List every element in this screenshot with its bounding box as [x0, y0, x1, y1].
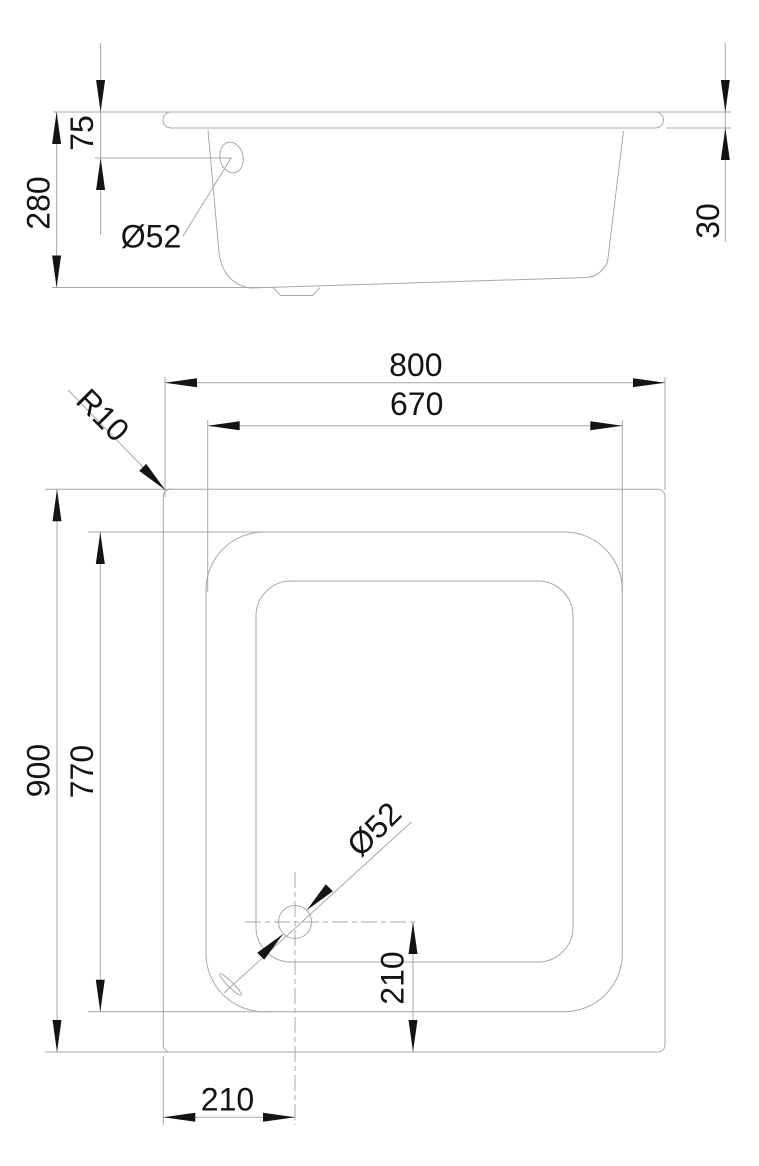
dim-label-280: 280	[21, 176, 57, 229]
arrowhead	[409, 1020, 418, 1052]
side-elevation-view: 75 280 Ø52 30	[21, 43, 731, 296]
drain-leader-line	[183, 158, 232, 237]
technical-drawing-sheet: 75 280 Ø52 30	[0, 0, 759, 1166]
arrowhead	[208, 421, 240, 430]
arrowhead	[53, 489, 62, 521]
dim-label-670: 670	[390, 386, 443, 422]
arrowhead	[52, 112, 61, 144]
dim-label-900: 900	[21, 744, 57, 797]
arrowhead	[633, 378, 665, 387]
rim-profile	[163, 112, 664, 128]
dim-label-770: 770	[64, 745, 100, 798]
dim-label-75: 75	[64, 115, 100, 151]
dim-label-r10: R10	[69, 382, 136, 449]
arrowhead	[257, 934, 283, 960]
arrowhead	[163, 1113, 195, 1122]
dim-label-drain-side: Ø52	[121, 219, 181, 255]
arrowhead	[165, 378, 197, 387]
arrowhead	[52, 256, 61, 288]
arrowhead	[53, 1020, 62, 1052]
left-wall-profile	[208, 130, 250, 288]
arrowhead	[590, 421, 622, 430]
basin-floor-outline	[256, 581, 573, 962]
dim-label-800: 800	[389, 347, 442, 383]
outer-rim-outline	[163, 489, 665, 1052]
arrowhead	[139, 464, 165, 490]
bottom-and-right-wall-profile	[250, 131, 624, 288]
arrowhead	[96, 158, 105, 190]
arrowhead	[96, 980, 105, 1012]
arrowhead	[96, 80, 105, 112]
arrowhead	[409, 922, 418, 954]
dim-label-210-horizontal: 210	[201, 1082, 254, 1118]
dim-label-210-vertical: 210	[375, 951, 411, 1004]
arrowhead	[263, 1113, 295, 1122]
arrowhead	[721, 80, 730, 112]
plan-view: 800 670 R10 900 770 Ø52 210 210	[21, 347, 665, 1125]
dim-label-30: 30	[690, 203, 726, 239]
dim-label-drain-plan: Ø52	[340, 795, 408, 863]
arrowhead	[721, 128, 730, 160]
drain-fitting-profile	[273, 288, 320, 296]
drawing-canvas: 75 280 Ø52 30	[0, 0, 759, 1166]
arrowhead	[96, 532, 105, 564]
